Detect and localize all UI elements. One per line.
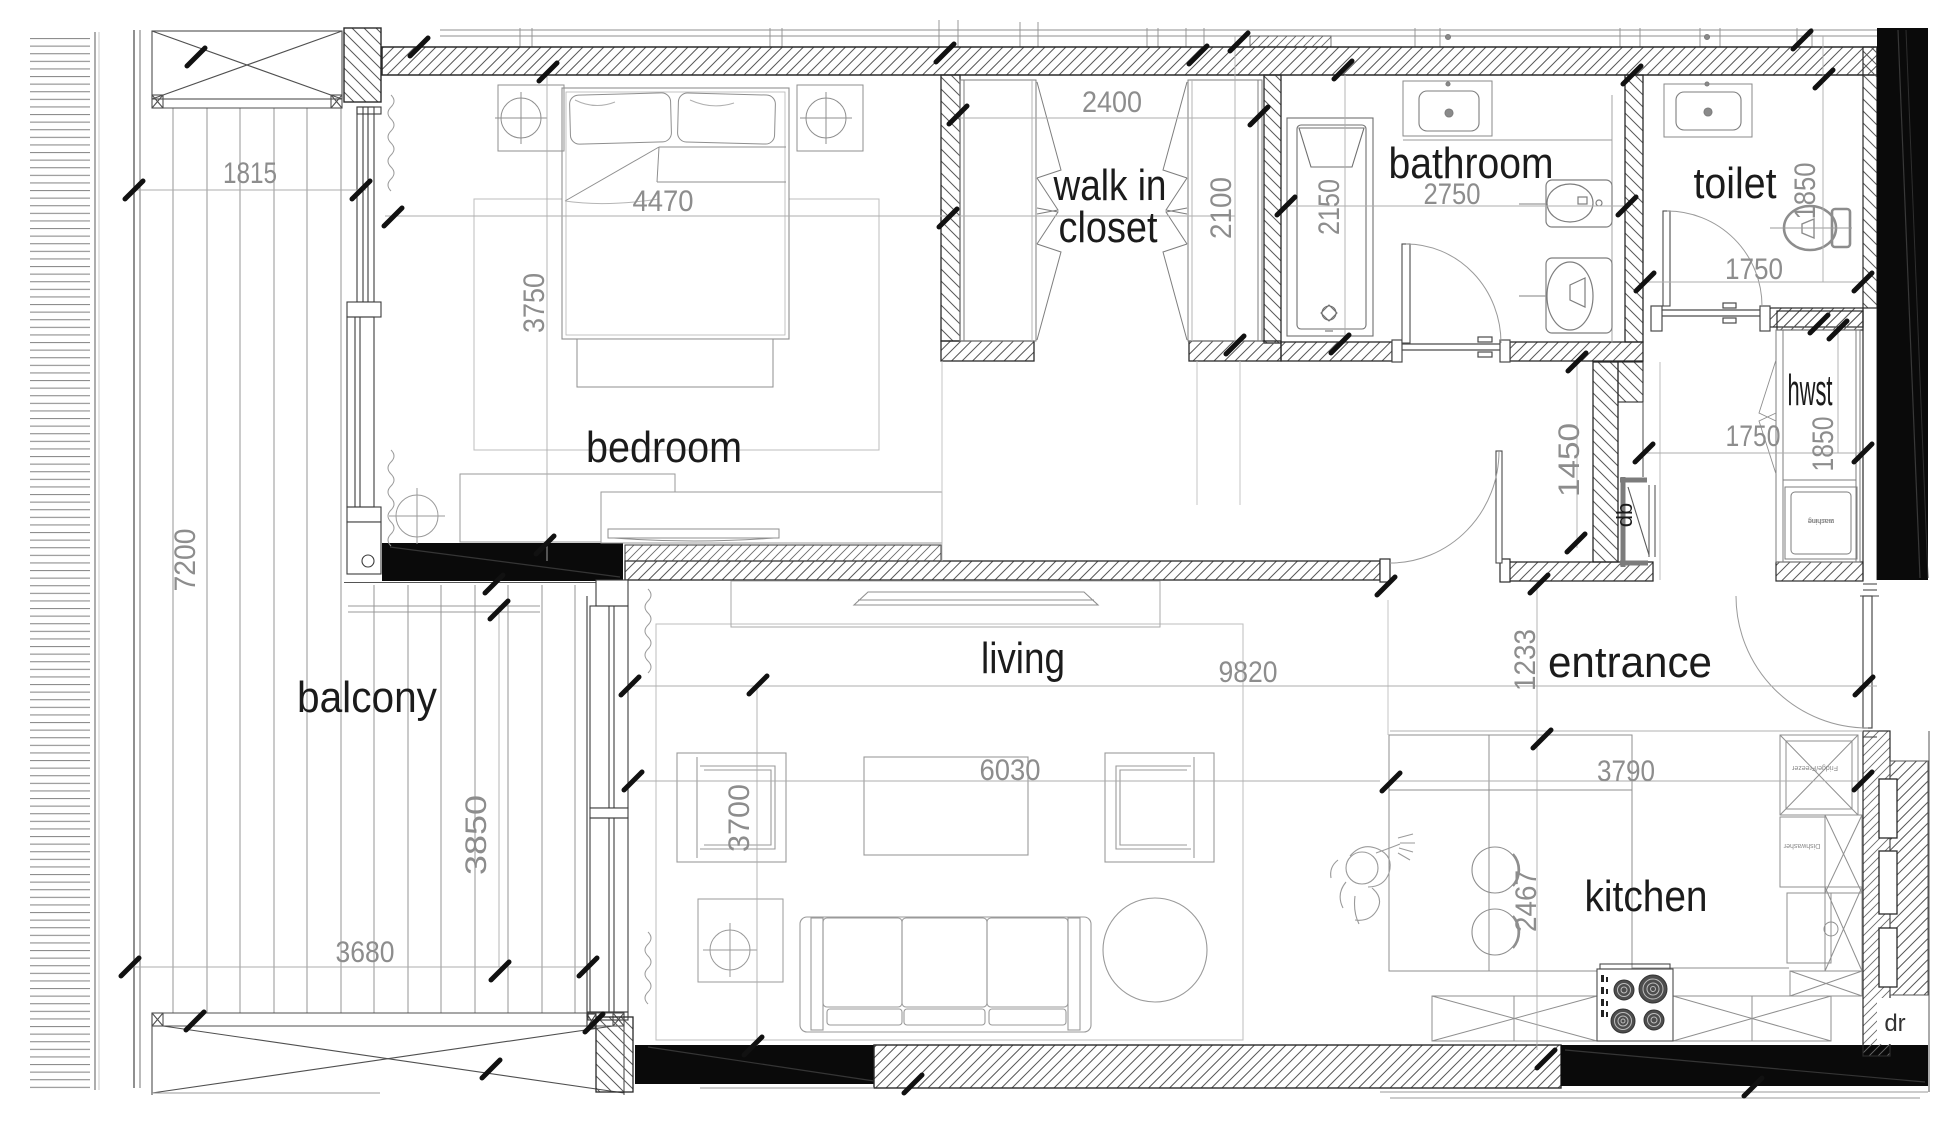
svg-text:1850: 1850 — [1807, 417, 1840, 472]
svg-text:3700: 3700 — [723, 784, 756, 852]
svg-text:1750: 1750 — [1725, 253, 1783, 286]
svg-text:3850: 3850 — [460, 795, 493, 875]
svg-text:1750: 1750 — [1726, 420, 1781, 453]
svg-text:1450: 1450 — [1553, 423, 1586, 497]
svg-text:kitchen: kitchen — [1585, 872, 1708, 921]
svg-text:db: db — [1612, 503, 1637, 527]
svg-text:2750: 2750 — [1424, 178, 1481, 211]
svg-text:7200: 7200 — [169, 529, 202, 592]
svg-text:dr: dr — [1884, 1010, 1905, 1037]
svg-text:1815: 1815 — [223, 157, 277, 190]
svg-text:2150: 2150 — [1313, 179, 1346, 235]
svg-text:closet: closet — [1059, 203, 1158, 252]
svg-text:9820: 9820 — [1219, 656, 1278, 689]
svg-text:1850: 1850 — [1789, 163, 1822, 220]
svg-text:entrance: entrance — [1548, 638, 1712, 687]
svg-text:Fridge/Freezer: Fridge/Freezer — [1791, 764, 1838, 771]
svg-text:4470: 4470 — [633, 185, 694, 218]
svg-text:2467: 2467 — [1510, 870, 1543, 932]
svg-text:6030: 6030 — [980, 754, 1041, 787]
svg-text:balcony: balcony — [297, 673, 437, 722]
svg-text:3790: 3790 — [1597, 755, 1655, 788]
svg-text:1233: 1233 — [1509, 629, 1542, 691]
svg-text:living: living — [981, 634, 1065, 683]
svg-text:toilet: toilet — [1694, 159, 1777, 208]
svg-text:machine: machine — [1808, 517, 1835, 524]
svg-text:3680: 3680 — [336, 936, 395, 969]
svg-text:3750: 3750 — [518, 273, 551, 333]
svg-text:2100: 2100 — [1205, 177, 1238, 239]
svg-text:hwst: hwst — [1788, 366, 1833, 415]
svg-text:2400: 2400 — [1082, 86, 1142, 119]
svg-text:Dishwasher: Dishwasher — [1783, 842, 1820, 849]
svg-text:bedroom: bedroom — [586, 423, 742, 472]
